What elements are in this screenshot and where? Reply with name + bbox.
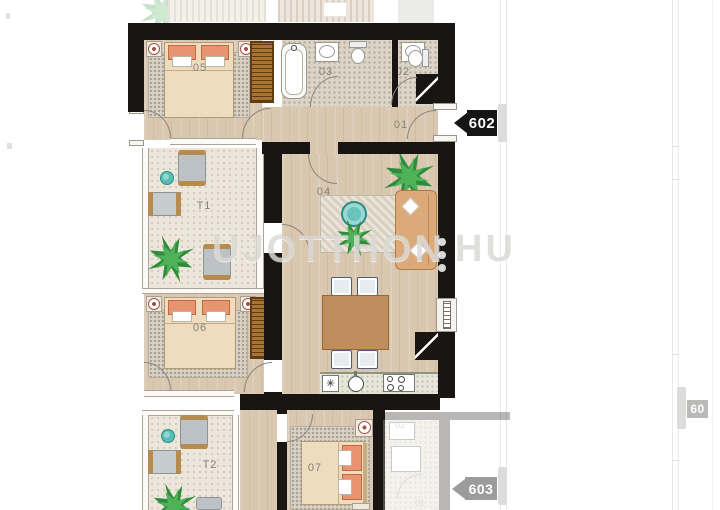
wall-right-mid bbox=[438, 140, 455, 298]
lamp-icon bbox=[148, 43, 160, 55]
unit-603-badge-group[interactable]: 603 bbox=[452, 477, 502, 501]
pillow bbox=[338, 450, 352, 466]
lamp-icon bbox=[148, 298, 160, 310]
terrace-chair bbox=[180, 415, 208, 449]
wall-hall-07 bbox=[277, 442, 287, 510]
window-t1-bottom bbox=[142, 288, 264, 294]
pillow bbox=[338, 479, 352, 495]
neighbor-shower bbox=[391, 446, 421, 472]
wall-right-upper bbox=[438, 40, 455, 108]
unit-602-badge[interactable]: 602 bbox=[467, 110, 497, 136]
corridor-wall-line bbox=[672, 0, 673, 510]
terrace-chair bbox=[196, 497, 222, 510]
terrace-table bbox=[148, 192, 181, 216]
room-label-06: 06 bbox=[186, 322, 214, 334]
wall-hall-living bbox=[338, 142, 438, 154]
corridor-wall-line bbox=[712, 0, 713, 510]
dining-chair bbox=[331, 350, 352, 369]
plant-icon bbox=[152, 484, 196, 510]
headboard bbox=[363, 443, 367, 503]
door-frame bbox=[129, 140, 144, 146]
watermark-text-right: HU bbox=[455, 228, 516, 271]
watermark-text-left: UJOTTHON bbox=[212, 228, 445, 271]
toilet bbox=[408, 50, 423, 67]
burner-icon bbox=[398, 385, 404, 391]
bathtub-inner bbox=[285, 49, 303, 95]
watermark-dot bbox=[438, 251, 446, 259]
entrance-door-frame bbox=[433, 135, 457, 142]
neighbor-room-label: 02 bbox=[395, 420, 405, 430]
watermark-dots bbox=[438, 238, 447, 274]
dining-table bbox=[322, 295, 389, 350]
watermark-dot bbox=[438, 238, 446, 246]
kitchen-sink bbox=[348, 376, 364, 392]
dining-chair bbox=[357, 350, 378, 369]
dining-chair bbox=[357, 277, 378, 296]
neighbor-furniture bbox=[398, 0, 434, 24]
neighbor-unit-above bbox=[126, 0, 464, 24]
unit-602-arrow-icon bbox=[454, 112, 468, 134]
hall-floor bbox=[240, 410, 277, 510]
nightstand bbox=[352, 503, 370, 510]
room-label-t1: T1 bbox=[190, 200, 218, 212]
wall-top bbox=[128, 23, 455, 40]
wardrobe bbox=[250, 41, 274, 103]
toilet-tank bbox=[422, 49, 429, 67]
floor-plan-canvas: 05 03 02 01 04 ✳ T1 bbox=[0, 0, 720, 510]
watermark-dot bbox=[438, 264, 446, 272]
radiator-icon bbox=[443, 301, 451, 329]
plant-pot-icon bbox=[161, 429, 175, 443]
neighbor-room-label: 01 bbox=[415, 498, 425, 508]
unit-603-badge[interactable]: 603 bbox=[465, 477, 497, 500]
duct-shaft bbox=[415, 332, 438, 360]
room-label-05: 05 bbox=[186, 62, 214, 74]
terrace-chair bbox=[178, 150, 206, 186]
wall-living-left bbox=[264, 154, 282, 223]
lamp-icon bbox=[358, 421, 371, 434]
window-room06-terrace bbox=[144, 390, 234, 397]
burner-icon bbox=[387, 376, 393, 382]
wall-hall-living bbox=[262, 142, 310, 154]
corridor-joint-tick bbox=[672, 146, 679, 147]
room-label-t2: T2 bbox=[196, 459, 224, 471]
toilet bbox=[351, 48, 365, 64]
corridor-joint-tick bbox=[672, 179, 679, 180]
toilet-tank bbox=[349, 41, 367, 48]
wall-kitchen-bottom bbox=[240, 394, 440, 410]
duct-shaft bbox=[416, 74, 438, 104]
corridor-wall-line bbox=[678, 0, 679, 510]
wall-right-lower bbox=[438, 332, 455, 398]
unit-603-arrow-icon bbox=[452, 479, 465, 499]
plant-pot-icon bbox=[160, 171, 174, 185]
window-room05-terrace bbox=[170, 138, 256, 145]
unit-60-badge[interactable]: 60 bbox=[687, 400, 708, 418]
neighbor-furniture bbox=[323, 2, 347, 17]
dishwasher-icon: ✳ bbox=[322, 375, 339, 392]
faucet-icon bbox=[354, 371, 357, 377]
edge-mark bbox=[6, 13, 10, 19]
corridor-joint-tick bbox=[672, 460, 679, 461]
dining-chair bbox=[331, 277, 352, 296]
window-t2-right bbox=[232, 415, 239, 510]
terrace-table bbox=[148, 450, 181, 474]
corridor-door-bar bbox=[677, 387, 686, 429]
neighbor-wardrobe bbox=[168, 0, 266, 22]
corridor-door-bar bbox=[498, 104, 507, 142]
burner-icon bbox=[387, 384, 394, 391]
faucet-icon bbox=[291, 45, 297, 51]
plant-icon bbox=[148, 236, 194, 282]
sink-basin bbox=[319, 45, 335, 58]
pillow bbox=[206, 311, 226, 322]
room-label-07: 07 bbox=[302, 462, 328, 474]
wall-left-upper bbox=[128, 40, 144, 112]
entrance-door-frame bbox=[433, 103, 457, 110]
neighbor-wall bbox=[439, 412, 450, 510]
pillow bbox=[172, 311, 192, 322]
edge-mark bbox=[7, 143, 12, 149]
wall-hall-07 bbox=[277, 410, 287, 414]
burner-icon bbox=[398, 376, 405, 383]
corridor-joint-tick bbox=[672, 354, 679, 355]
